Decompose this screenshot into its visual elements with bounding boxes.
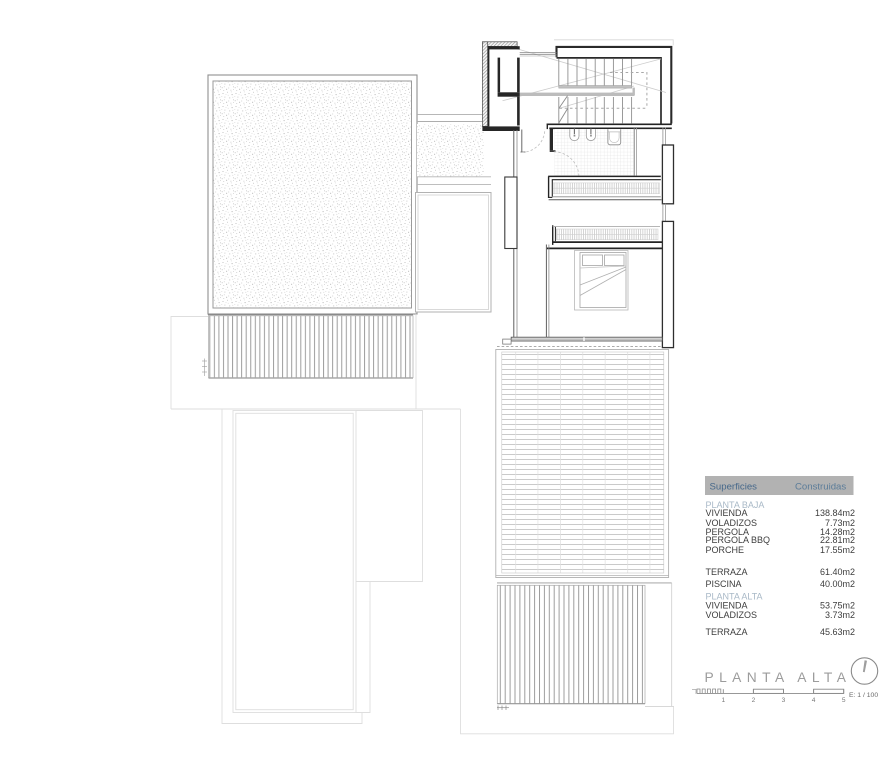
svg-text:Construidas: Construidas bbox=[795, 482, 846, 493]
svg-text:PORCHE: PORCHE bbox=[706, 545, 745, 555]
svg-text:2: 2 bbox=[752, 697, 756, 704]
svg-text:3.73m2: 3.73m2 bbox=[825, 610, 855, 620]
svg-text:VIVIENDA: VIVIENDA bbox=[706, 601, 748, 611]
svg-text:VOLADIZOS: VOLADIZOS bbox=[706, 610, 758, 620]
svg-text:53.75m2: 53.75m2 bbox=[820, 601, 855, 611]
svg-text:45.63m2: 45.63m2 bbox=[820, 627, 855, 637]
svg-text:E: 1 / 100: E: 1 / 100 bbox=[849, 692, 878, 699]
svg-text:TERRAZA: TERRAZA bbox=[706, 627, 748, 637]
svg-text:PLANTA ALTA: PLANTA ALTA bbox=[705, 670, 852, 685]
svg-text:3: 3 bbox=[782, 697, 786, 704]
svg-text:61.40m2: 61.40m2 bbox=[820, 567, 855, 577]
svg-text:VIVIENDA: VIVIENDA bbox=[706, 508, 748, 518]
svg-text:1: 1 bbox=[721, 697, 725, 704]
svg-text:5: 5 bbox=[842, 697, 846, 704]
svg-text:40.00m2: 40.00m2 bbox=[820, 579, 855, 589]
svg-text:4: 4 bbox=[812, 697, 816, 704]
svg-text:PERGOLA BBQ: PERGOLA BBQ bbox=[706, 535, 771, 545]
svg-text:17.55m2: 17.55m2 bbox=[820, 545, 855, 555]
svg-text:Superficies: Superficies bbox=[710, 482, 758, 493]
svg-text:22.81m2: 22.81m2 bbox=[820, 535, 855, 545]
svg-text:138.84m2: 138.84m2 bbox=[815, 508, 855, 518]
svg-text:PISCINA: PISCINA bbox=[706, 579, 742, 589]
svg-text:TERRAZA: TERRAZA bbox=[706, 567, 748, 577]
